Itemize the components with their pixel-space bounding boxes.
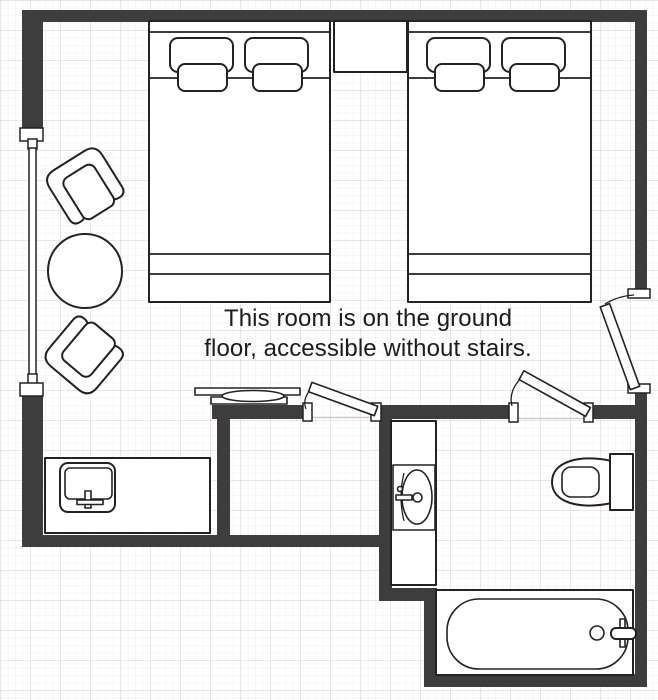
bathroom-step-wall (379, 588, 430, 601)
sink-tap-dot (398, 487, 403, 492)
toilet-tank (610, 454, 633, 510)
door-leaf (600, 304, 639, 390)
window (20, 128, 43, 396)
nightstand (334, 21, 407, 72)
window-cap-bottom (20, 383, 43, 396)
bathtub (436, 590, 636, 675)
mid-top-wall (379, 405, 510, 419)
bathroom-door (509, 371, 593, 422)
door-jamb (628, 289, 650, 298)
small-pillow (510, 64, 559, 91)
door-leaf (309, 382, 378, 415)
entrance-door (600, 289, 650, 393)
toilet-seat (562, 467, 599, 497)
round-table (48, 234, 122, 308)
door-leaf (519, 371, 590, 417)
caption-line-2: floor, accessible without stairs. (168, 334, 568, 364)
armchair-top (43, 144, 128, 229)
right-wall-lower (635, 390, 647, 687)
left-wall-upper (22, 10, 43, 130)
tub-faucet-spout (611, 628, 636, 639)
bottom-wall-left (22, 535, 392, 547)
bathroom-top-wall-right (592, 405, 647, 419)
desk-sink-unit (45, 458, 210, 533)
left-wall-lower (22, 395, 43, 547)
faucet-handle (77, 500, 103, 505)
sink-drain (413, 493, 422, 502)
caption: This room is on the ground floor, access… (168, 304, 568, 363)
tv-stand (222, 391, 284, 402)
small-pillow (178, 64, 227, 91)
floor-plan: This room is on the ground floor, access… (0, 0, 658, 700)
caption-line-1: This room is on the ground (168, 304, 568, 334)
door-jamb (509, 403, 518, 422)
vanity-counter (391, 421, 436, 585)
twin-bed-left (149, 21, 330, 302)
tv-console (195, 388, 300, 404)
tub-drain (590, 626, 604, 640)
right-wall-upper (635, 10, 647, 292)
toilet (552, 454, 633, 510)
closet-door (303, 382, 381, 421)
twin-bed-right (408, 21, 591, 302)
small-pillow (253, 64, 302, 91)
door-swing-arc (511, 377, 522, 406)
sink-faucet (396, 495, 412, 500)
small-pillow (435, 64, 484, 91)
door-jamb (303, 403, 312, 421)
window-glass (29, 148, 36, 376)
closet-left-wall (217, 405, 230, 547)
armchair-bottom (41, 311, 128, 398)
